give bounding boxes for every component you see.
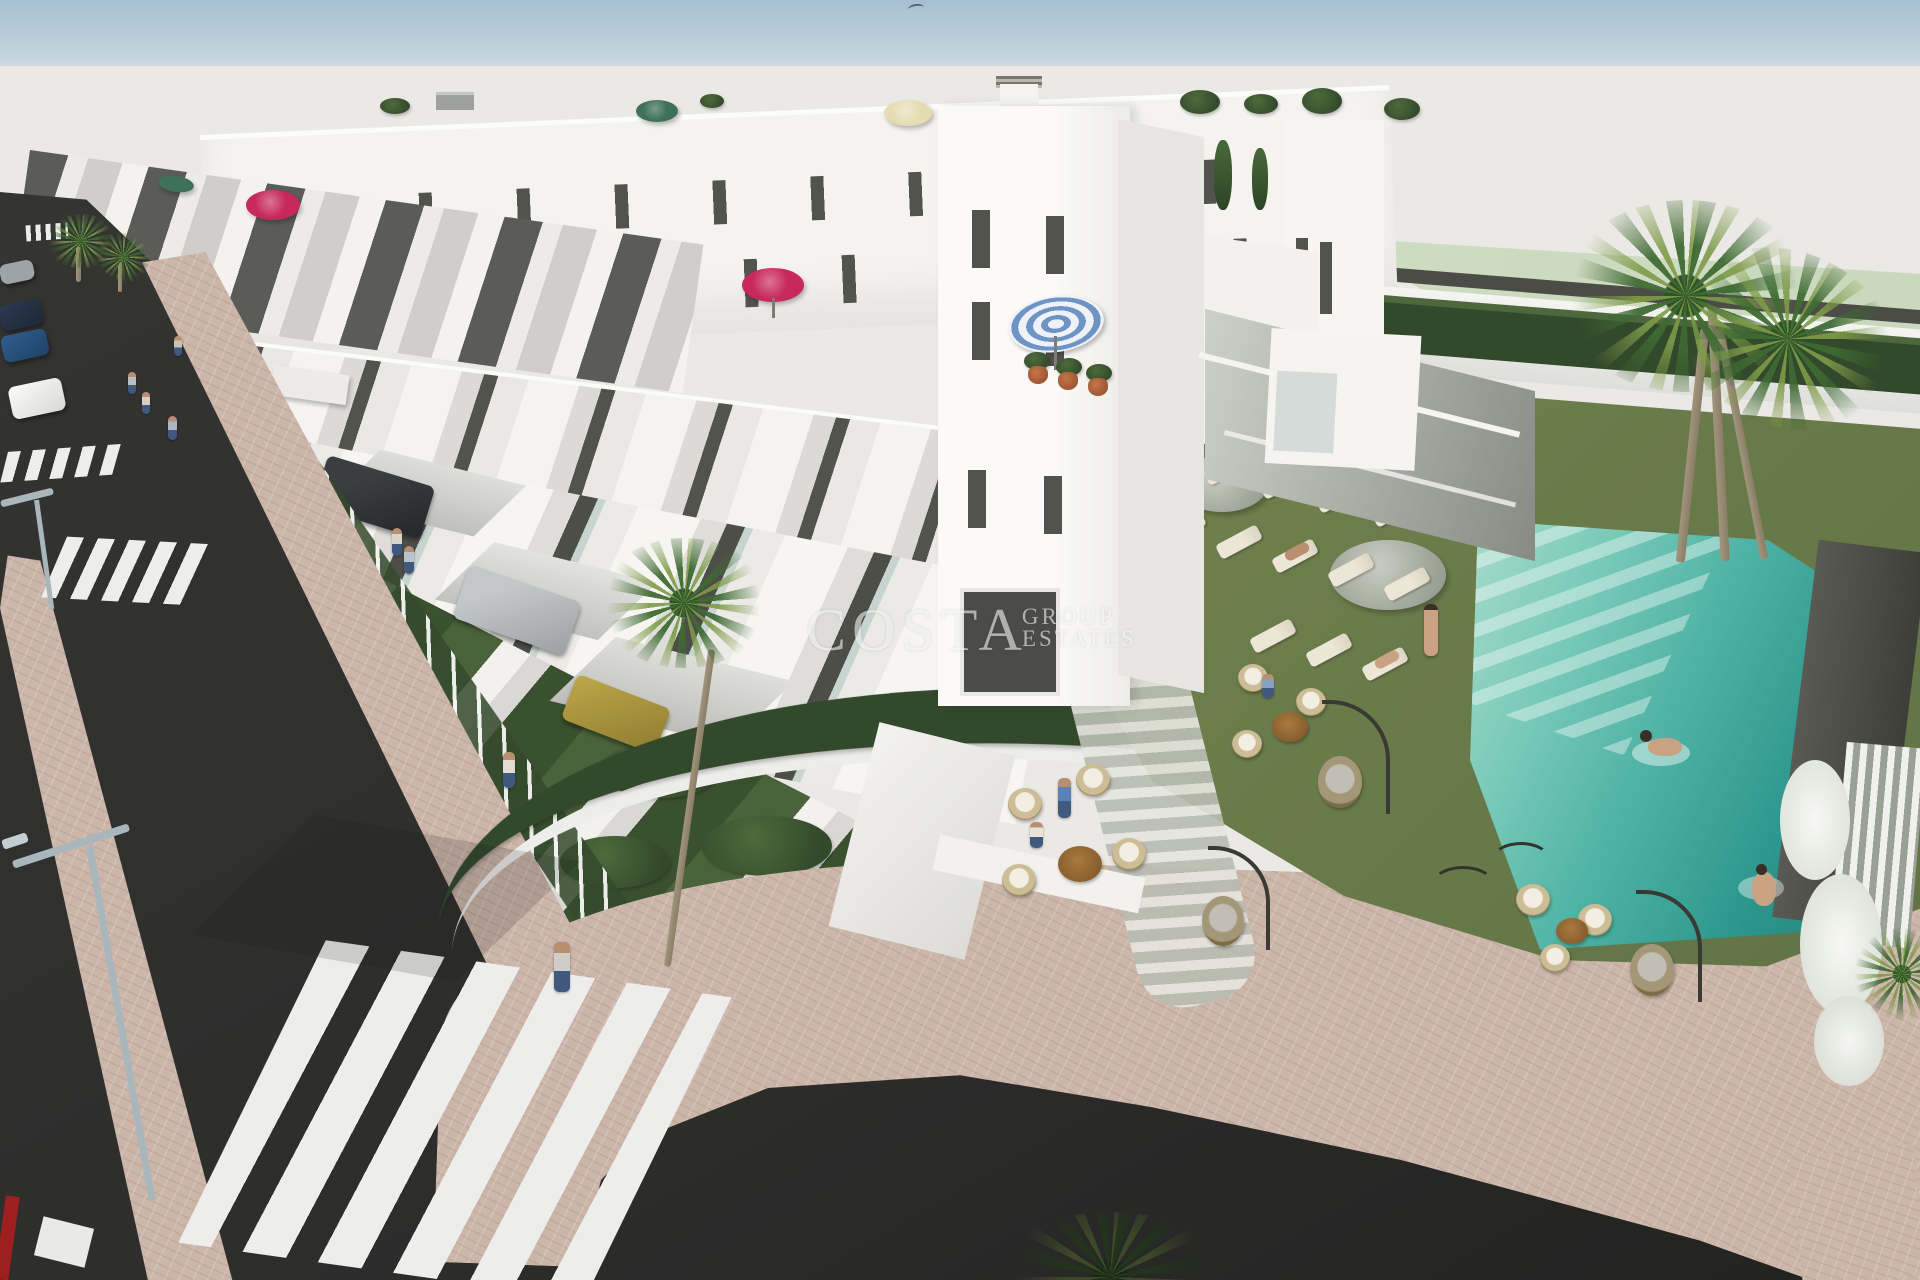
roof-plant xyxy=(1244,94,1278,114)
pedestrian-promenade xyxy=(554,942,570,992)
pedestrian xyxy=(142,392,150,414)
terracotta-pot xyxy=(1028,366,1048,384)
wicker-chair xyxy=(1540,944,1570,972)
building-window xyxy=(972,210,990,268)
standing-person xyxy=(1058,778,1071,818)
terracotta-pot xyxy=(1088,378,1108,396)
terracotta-pot xyxy=(1058,372,1078,390)
pedestrian xyxy=(128,372,136,394)
watermark: COSTA GROUP ESTATES xyxy=(806,600,1137,660)
roof-umbrella-cream xyxy=(884,100,932,126)
watermark-word-estates: ESTATES xyxy=(1022,628,1137,650)
white-grass-plant xyxy=(1780,760,1850,880)
palm-tree-front xyxy=(598,538,770,668)
watermark-brand: COSTA xyxy=(806,600,1028,660)
building-window xyxy=(1044,476,1062,534)
swimmer-head xyxy=(1640,730,1652,742)
roof-umbrella-green xyxy=(636,100,678,122)
roof-plant xyxy=(1384,98,1420,120)
stair-structure xyxy=(1265,328,1422,471)
egg-chair xyxy=(1318,756,1362,808)
swimmer-head xyxy=(1756,864,1767,875)
egg-chair xyxy=(1630,944,1674,996)
tall-plant xyxy=(1214,140,1232,210)
garden-table xyxy=(1058,846,1102,882)
seated-person xyxy=(1262,674,1274,698)
roof-plant xyxy=(1180,90,1220,114)
pedestrian xyxy=(168,416,177,440)
wicker-chair xyxy=(1076,764,1110,796)
pedestrian xyxy=(174,336,182,356)
pedestrian xyxy=(392,528,402,556)
building-window xyxy=(972,302,990,360)
glass-panel xyxy=(1273,371,1337,454)
egg-chair xyxy=(1202,896,1244,946)
pedestrian xyxy=(404,546,414,574)
seated-person xyxy=(1030,822,1043,848)
watermark-word-group: GROUP xyxy=(1022,606,1137,628)
terrace-umbrella-red xyxy=(742,268,804,302)
roof-ac-unit xyxy=(436,92,474,110)
building-window xyxy=(968,470,986,528)
sky xyxy=(0,0,1920,66)
roof-umbrella-red xyxy=(246,190,300,220)
watermark-subtitle: GROUP ESTATES xyxy=(1022,606,1137,650)
swing-frame xyxy=(1432,866,1494,902)
horizon-haze xyxy=(0,58,1920,84)
wicker-chair xyxy=(1008,788,1042,820)
umbrella-pole xyxy=(772,298,775,318)
swing-frame xyxy=(1492,842,1550,876)
wicker-chair xyxy=(1002,864,1036,896)
pedestrian xyxy=(503,752,515,788)
roof-plant xyxy=(1302,88,1342,114)
wicker-chair xyxy=(1232,730,1262,758)
render-image: COSTA GROUP ESTATES xyxy=(0,0,1920,1280)
roof-plant xyxy=(700,94,724,108)
wicker-chair xyxy=(1516,884,1550,916)
swimmer xyxy=(1752,872,1776,906)
garden-table xyxy=(1556,918,1588,944)
building-window xyxy=(1046,216,1064,274)
end-wall-window xyxy=(1320,242,1332,314)
roof-plant xyxy=(380,98,410,114)
wicker-chair xyxy=(1112,838,1146,870)
swimmer xyxy=(1648,738,1682,756)
crosswalk-middle xyxy=(41,537,219,606)
tall-plant xyxy=(1252,148,1268,210)
walking-person xyxy=(1424,604,1438,656)
garden-table xyxy=(1272,712,1308,742)
